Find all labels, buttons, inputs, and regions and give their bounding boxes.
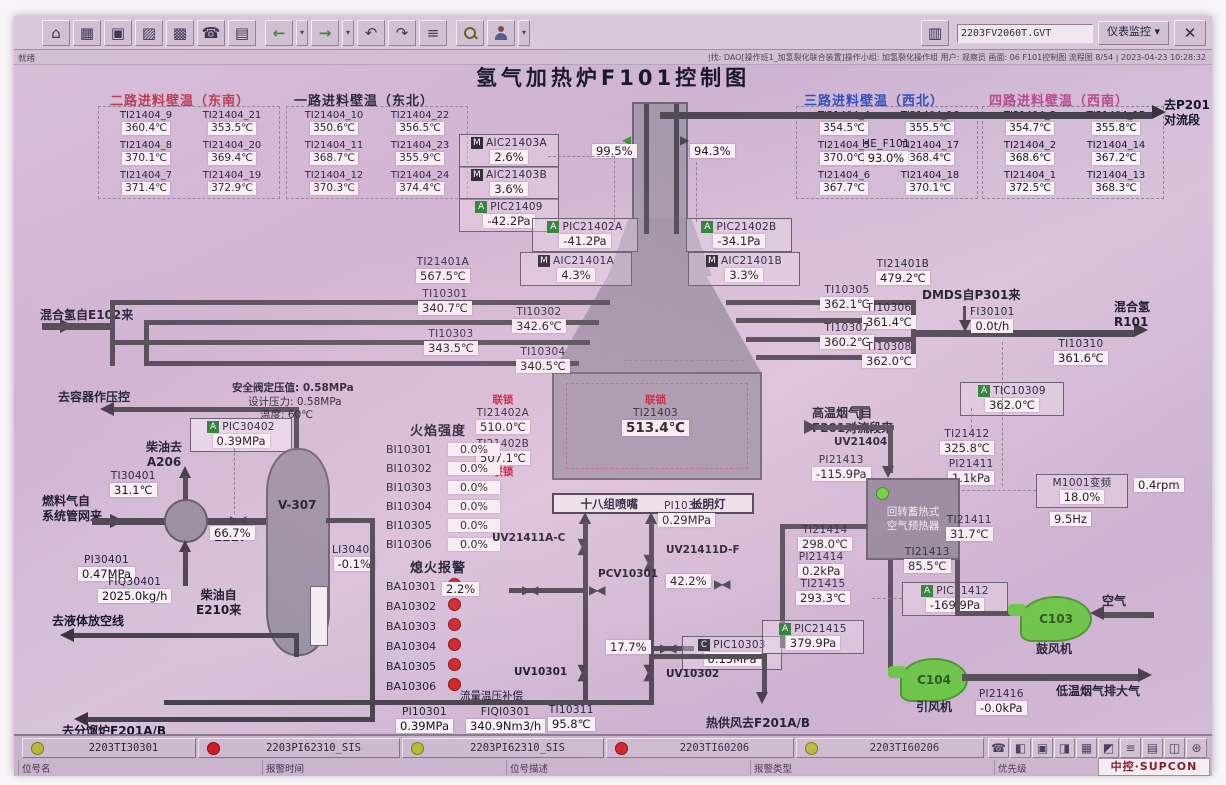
instrument-view-button[interactable]: 仪表监控 ▾: [1098, 21, 1169, 45]
pipe: [110, 340, 590, 345]
flowsheet-icon[interactable]: ▦: [73, 20, 101, 46]
instrument-ti21414[interactable]: TI21414298.0℃: [798, 524, 852, 552]
alarm-ba10305[interactable]: BA10305: [386, 658, 461, 673]
alarm-col-type: 报警类型: [750, 760, 994, 775]
pipe: [294, 633, 299, 657]
uv21411ac-label: UV21411A-C: [492, 532, 565, 545]
pipe: [644, 104, 649, 234]
valve-uv10302[interactable]: ▶◀: [643, 665, 655, 679]
instrument-aic21403a[interactable]: MAIC21403A 2.6%: [459, 134, 559, 168]
valve-actuator: [852, 406, 870, 409]
stack-damper-b[interactable]: ▶: [680, 134, 687, 146]
valve-17pct[interactable]: ▶◀: [660, 642, 674, 654]
arrow: [882, 466, 894, 478]
arrow: [60, 628, 74, 642]
mix-h2-to-label: 混合氢R101: [1114, 300, 1150, 330]
uv21411df-label: UV21411D-F: [666, 544, 740, 557]
alarm-cell[interactable]: 2203TI30301: [22, 738, 196, 758]
diesel-from-label: 柴油自E210来: [196, 588, 241, 618]
instrument-m1001-rpm[interactable]: 0.4rpm: [1134, 478, 1184, 493]
signal-line: [962, 490, 1036, 491]
alarm-col-time: 报警时间: [262, 760, 506, 775]
alarm-dot: [448, 658, 461, 671]
instrument-ti21402a[interactable]: 联锁 TI21402A510.0℃: [476, 394, 530, 434]
instrument-pic21402b[interactable]: APIC21402B -34.1Pa: [686, 218, 792, 252]
dmds-label: DMDS自P301来: [922, 288, 1020, 303]
alarm-priority-dot: [207, 742, 220, 755]
instrument-pic21402a[interactable]: APIC21402A -41.2Pa: [532, 218, 638, 252]
signal-line: [614, 156, 615, 222]
session-info: |找: DAO[操作班1_加氢裂化联合装置]操作小组: 加氢裂化操作组 用户: …: [708, 52, 1206, 63]
user-icon[interactable]: [487, 20, 515, 46]
design-pressure-label: 设计压力: 0.58MPa: [248, 396, 342, 409]
fan-c104[interactable]: C104: [900, 658, 968, 702]
valve-42pct[interactable]: ▶◀: [714, 578, 728, 590]
v307-label: V-307: [278, 498, 316, 513]
instrument-bi10302[interactable]: BI103020.0%: [386, 462, 500, 475]
instrument-valve177[interactable]: 17.7%: [606, 640, 651, 655]
alarm-priority-dot: [31, 742, 44, 755]
flue-out-label: 低温烟气排大气: [1056, 684, 1140, 699]
settings-icon[interactable]: ⊛: [1186, 738, 1207, 758]
valve-stem: [859, 408, 862, 420]
instrument-pi21416[interactable]: PI21416-0.0kPa: [976, 688, 1027, 716]
instrument-ti21413[interactable]: TI2141385.5℃: [904, 546, 951, 574]
instrument-ti21401b[interactable]: TI21401B479.2℃: [876, 258, 930, 286]
alarm-ba10304[interactable]: BA10304: [386, 638, 461, 653]
instrument-bi10303[interactable]: BI103030.0%: [386, 481, 500, 494]
instrument-pic21415[interactable]: APIC21415 379.9Pa: [762, 620, 864, 654]
instrument-ti21401a[interactable]: TI21401A567.5℃: [416, 256, 470, 284]
instrument-bi10305[interactable]: BI103050.0%: [386, 519, 500, 532]
idfan-label: 引风机: [916, 700, 952, 715]
pipe: [110, 300, 115, 366]
to-vessel-label: 去容器作压控: [58, 390, 130, 405]
feed-table-pass1[interactable]: TI21404_10350.6℃ TI21404_22356.5℃ TI2140…: [286, 106, 468, 199]
signal-line: [234, 448, 235, 514]
monitor-icon[interactable]: ▣: [104, 20, 132, 46]
instrument-tic10309[interactable]: ATIC10309 362.0℃: [960, 382, 1064, 416]
instrument-ti10308[interactable]: TI10308362.0℃: [862, 341, 916, 369]
instrument-ti10304[interactable]: TI10304340.5℃: [516, 346, 570, 374]
signal-line: [624, 360, 744, 361]
table-icon[interactable]: ▦: [1076, 738, 1097, 758]
flame-header: 火焰强度: [410, 420, 466, 439]
diesel-to-label: 柴油去A206: [146, 440, 182, 470]
instrument-m1001-hz[interactable]: 9.5Hz: [1050, 512, 1091, 527]
instrument-m1001[interactable]: M1001变频 18.0%: [1036, 474, 1128, 508]
instrument-fiq30401[interactable]: FIQ304012025.0kg/h: [98, 576, 171, 604]
arrow: [756, 692, 768, 704]
instrument-aic21401b[interactable]: MAIC21401B 3.3%: [688, 252, 800, 286]
instrument-valve22[interactable]: 2.2%: [442, 582, 479, 597]
instrument-ti21415[interactable]: TI21415293.3℃: [796, 578, 850, 606]
pipe: [370, 518, 375, 722]
uv10302-label: UV10302: [666, 668, 719, 681]
signal-line: [548, 156, 614, 157]
instrument-fi30101[interactable]: FI301010.0t/h: [970, 306, 1015, 334]
to-vent-label: 去液体放空线: [52, 614, 124, 629]
pipe: [649, 654, 767, 659]
alarm-cell[interactable]: 2203PI62310_SIS: [402, 738, 604, 758]
valve-pcv10301[interactable]: ▶◀: [589, 584, 603, 596]
fan-c103[interactable]: C103: [1020, 596, 1092, 642]
valve-e217-out[interactable]: ▶◀: [230, 514, 244, 526]
lock-icon[interactable]: ◧: [1010, 738, 1031, 758]
feed-table-pass4[interactable]: TI21404_3354.7℃ TI21404_15355.8℃ TI21404…: [982, 106, 1164, 199]
report-icon[interactable]: ▤: [1142, 738, 1163, 758]
instrument-ti10310[interactable]: TI10310361.6℃: [1054, 338, 1108, 366]
alarm-cell[interactable]: 2203PI62310_SIS: [198, 738, 400, 758]
instrument-valve422[interactable]: 42.2%: [666, 574, 711, 589]
pipe: [88, 717, 374, 722]
report-icon[interactable]: ▤: [228, 20, 256, 46]
alarm-priority-dot: [805, 742, 818, 755]
grid-icon[interactable]: ▩: [166, 20, 194, 46]
pipe: [370, 700, 586, 705]
instrument-bi10301[interactable]: BI103010.0%: [386, 443, 500, 456]
alarm-priority-dot: [615, 742, 628, 755]
instrument-bi10306[interactable]: BI103060.0%: [386, 538, 500, 551]
burner-strip-label: 十八组喷嘴: [581, 496, 639, 512]
alarm-priority-dot: [411, 742, 424, 755]
flameout-header: 熄火报警: [410, 557, 466, 576]
hot-air-label: 热供风去F201A/B: [706, 716, 810, 731]
alarm-dot: [448, 638, 461, 651]
back-icon[interactable]: ←: [265, 20, 293, 46]
phone-icon[interactable]: ☎: [197, 20, 225, 46]
alarm-ba10303[interactable]: BA10303: [386, 618, 461, 633]
monitor-icon[interactable]: ▣: [1032, 738, 1053, 758]
phone-icon[interactable]: ☎: [988, 738, 1009, 758]
mix-h2-from-label: 混合氢自E102来: [40, 308, 133, 323]
pipe: [962, 674, 1140, 681]
instrument-ti10311[interactable]: TI1031195.8℃: [548, 704, 595, 732]
valve-uv10301[interactable]: ▶◀: [577, 665, 589, 679]
instrument-ti30401[interactable]: TI3040131.1℃: [110, 470, 157, 498]
alarm-col-desc: 位号描述: [506, 760, 750, 775]
instrument-aic21401a[interactable]: MAIC21401A 4.3%: [520, 252, 632, 286]
instrument-ti10302[interactable]: TI10302342.6℃: [512, 306, 566, 334]
factory-icon[interactable]: ▨: [135, 20, 163, 46]
instrument-pi10301[interactable]: PI103010.39MPa: [396, 706, 453, 734]
run-status-dot: [876, 487, 889, 500]
alarm-bar: 2203TI30301 2203PI62310_SIS 2203PI62310_…: [14, 734, 1212, 776]
instrument-ti21412[interactable]: TI21412325.8℃: [940, 428, 994, 456]
level-gauge: [310, 586, 328, 646]
pipe: [183, 550, 188, 586]
alarm-dot: [448, 618, 461, 631]
instrument-pi21413[interactable]: PI21413-115.9Pa: [812, 454, 871, 482]
furnace-stack: [632, 102, 688, 220]
page-prev-icon[interactable]: ↶: [357, 20, 385, 46]
back-dropdown-icon[interactable]: ▾: [296, 20, 308, 46]
signal-line: [696, 162, 697, 222]
alarm-col-priority: 优先级: [994, 760, 1098, 775]
pipe: [74, 633, 297, 638]
uv21404-label: UV21404: [834, 436, 887, 449]
instrument-ti10301[interactable]: TI10301340.7℃: [418, 288, 472, 316]
page-next-icon[interactable]: ↷: [388, 20, 416, 46]
alarm-dot: [448, 598, 461, 611]
instrument-valve-e217[interactable]: 66.7%: [210, 526, 255, 541]
search-icon[interactable]: [456, 20, 484, 46]
instrument-ti21403[interactable]: 联锁 TI21403513.4℃: [622, 394, 689, 436]
alarm-col-tagname: 位号名: [18, 760, 262, 775]
alarm-cell[interactable]: 2203TI60206: [606, 738, 794, 758]
pcv10301-label: PCV10301: [598, 568, 658, 581]
signal-line: [872, 598, 902, 599]
pipe: [110, 300, 610, 305]
pipe: [674, 104, 679, 234]
pipe: [1104, 612, 1154, 618]
graphic-file-input[interactable]: [957, 24, 1093, 43]
pipe: [326, 518, 374, 523]
pipe: [888, 560, 893, 672]
pipe: [660, 112, 1152, 119]
pipe: [42, 323, 112, 330]
pipe: [509, 588, 585, 593]
instrument-ti21411[interactable]: TI2141131.7℃: [946, 514, 993, 542]
forward-dropdown-icon[interactable]: ▾: [342, 20, 354, 46]
pipe: [955, 560, 960, 616]
printer-icon[interactable]: ◨: [1054, 738, 1075, 758]
valve-uv21411ac[interactable]: ▶◀: [577, 539, 589, 553]
instrument-damper-b[interactable]: 94.3%: [690, 144, 735, 159]
instrument-he-f101[interactable]: HE_F10193.0%: [862, 138, 910, 166]
page-title: 氢气加热炉F101控制图: [476, 62, 750, 92]
instrument-ti10303[interactable]: TI10303343.5℃: [424, 328, 478, 356]
instrument-pi21414[interactable]: PI214140.2kPa: [798, 551, 844, 579]
book-icon[interactable]: ≡: [419, 20, 447, 46]
blower-label: 鼓风机: [1036, 642, 1072, 657]
signal-line: [1002, 342, 1003, 486]
uv10301-label: UV10301: [514, 666, 567, 679]
instrument-fiqi0301[interactable]: FIQI0301340.9Nm3/h: [466, 706, 545, 734]
dcs-window: ⌂ ▦ ▣ ▨ ▩ ☎ ▤ ← ▾ → ▾ ↶ ↷ ≡ ▾ ▥ 仪表监控 ▾ ✕…: [14, 16, 1212, 774]
instrument-pic30402[interactable]: APIC30402 0.39MPa: [190, 418, 292, 452]
pipe: [762, 654, 767, 694]
close-button[interactable]: ✕: [1174, 20, 1206, 46]
exchanger-e217[interactable]: [164, 499, 208, 543]
valve-uv21404[interactable]: ▶◀: [852, 420, 866, 432]
instrument-pi10302[interactable]: PI103020.29MPa: [658, 500, 715, 528]
forward-icon[interactable]: →: [311, 20, 339, 46]
alarm-ba10306[interactable]: BA10306: [386, 678, 461, 693]
window-icon[interactable]: ◫: [1164, 738, 1185, 758]
alarm-icon[interactable]: ◩: [1098, 738, 1119, 758]
pipe: [144, 361, 579, 366]
burner-strip: 十八组喷嘴 长明灯: [552, 493, 754, 514]
alarm-cell[interactable]: 2203TI60206: [796, 738, 984, 758]
to-p201-label: 去P201对流段: [1164, 98, 1210, 128]
valve-22pct[interactable]: ▶◀: [522, 584, 536, 596]
screen-photo: ⌂ ▦ ▣ ▨ ▩ ☎ ▤ ← ▾ → ▾ ↶ ↷ ≡ ▾ ▥ 仪表监控 ▾ ✕…: [0, 0, 1226, 785]
feed-table-pass2[interactable]: TI21404_9360.4℃ TI21404_21353.5℃ TI21404…: [98, 106, 280, 199]
toolbar: ⌂ ▦ ▣ ▨ ▩ ☎ ▤ ← ▾ → ▾ ↶ ↷ ≡ ▾ ▥ 仪表监控 ▾ ✕: [14, 16, 1212, 50]
arrow: [1138, 668, 1152, 682]
arrow: [100, 402, 114, 416]
instrument-bi10304[interactable]: BI103040.0%: [386, 500, 500, 513]
instrument-aic21403b[interactable]: MAIC21403B 3.6%: [459, 166, 559, 200]
air-label: 空气: [1102, 594, 1126, 609]
safety-setpoint-label: 安全阀定压值: 0.58MPa: [232, 382, 354, 395]
home-icon[interactable]: ⌂: [42, 20, 70, 46]
pipe: [911, 330, 1134, 337]
alarm-ba10302[interactable]: BA10302: [386, 598, 461, 613]
signal-line: [971, 408, 972, 428]
supcon-logo: 中控·SUPCON: [1098, 758, 1210, 776]
user-dropdown-icon[interactable]: ▾: [518, 20, 530, 46]
save-icon[interactable]: ▥: [921, 20, 949, 46]
list-icon[interactable]: ≡: [1120, 738, 1141, 758]
status-left: 就绪: [18, 52, 35, 64]
